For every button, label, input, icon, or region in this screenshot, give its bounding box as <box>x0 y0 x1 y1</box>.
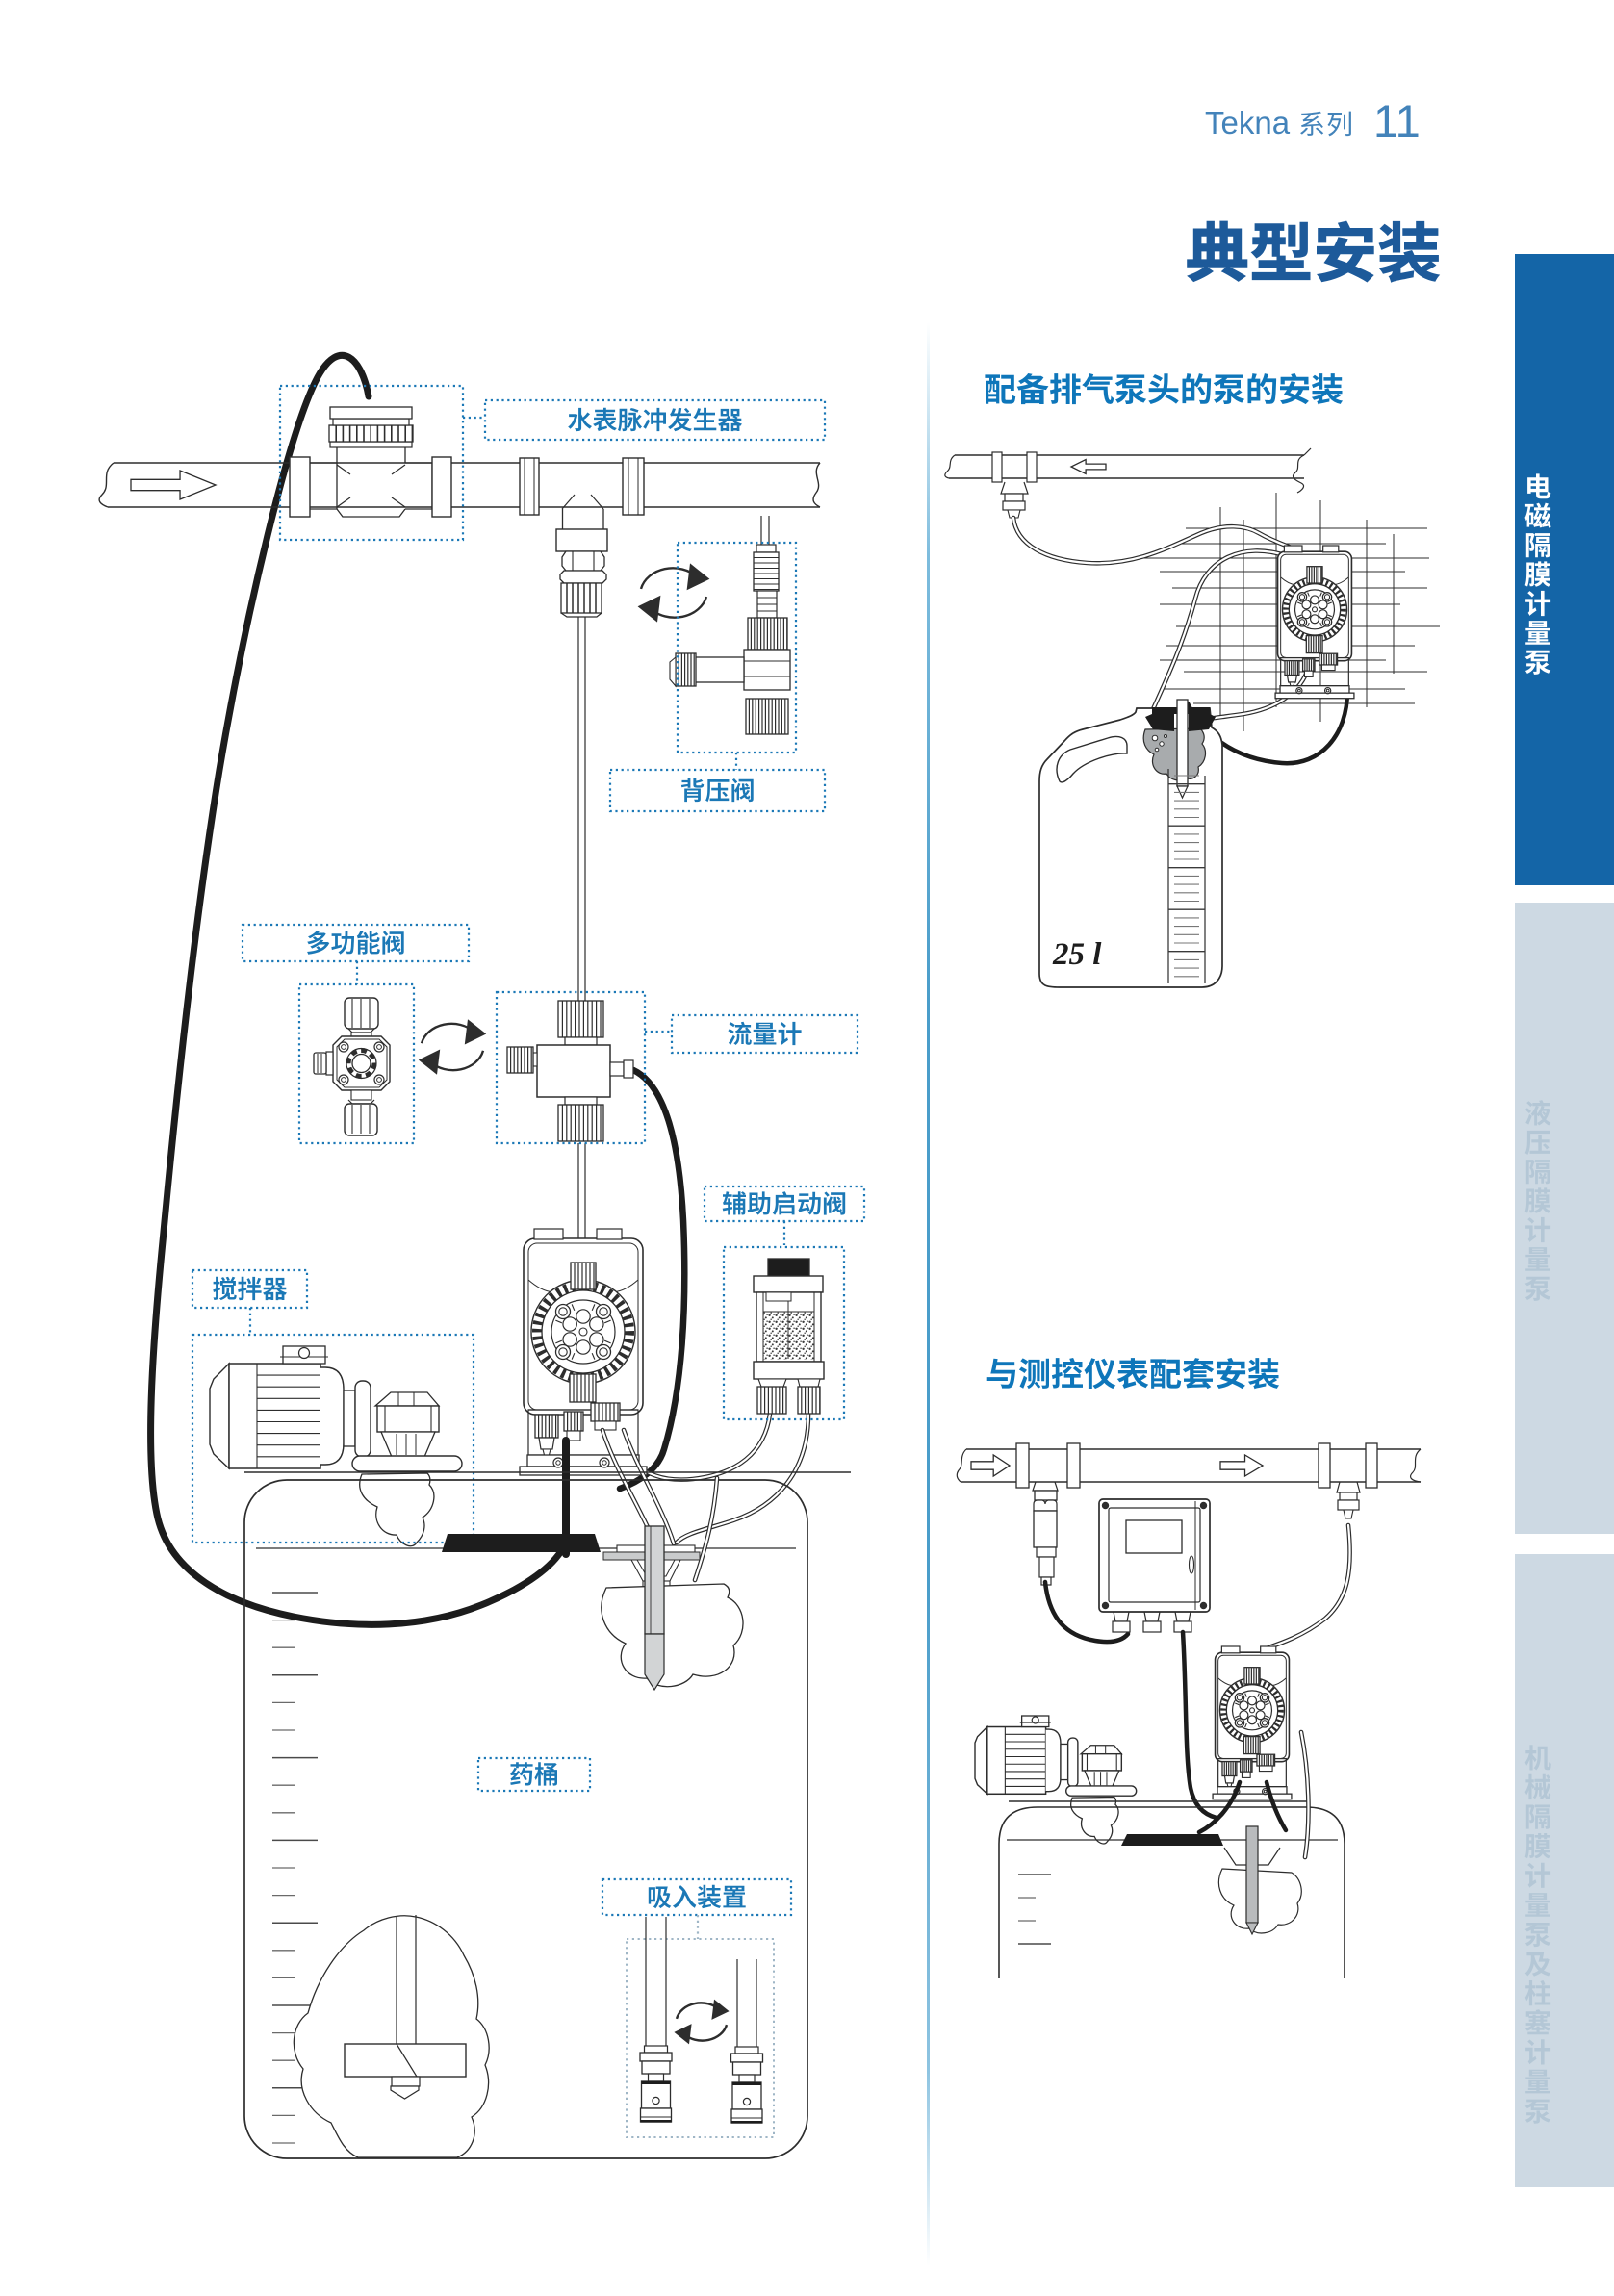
svg-text:11: 11 <box>1373 95 1421 146</box>
svg-text:25 l: 25 l <box>1052 937 1102 972</box>
svg-text:Tekna: Tekna <box>1205 105 1291 140</box>
